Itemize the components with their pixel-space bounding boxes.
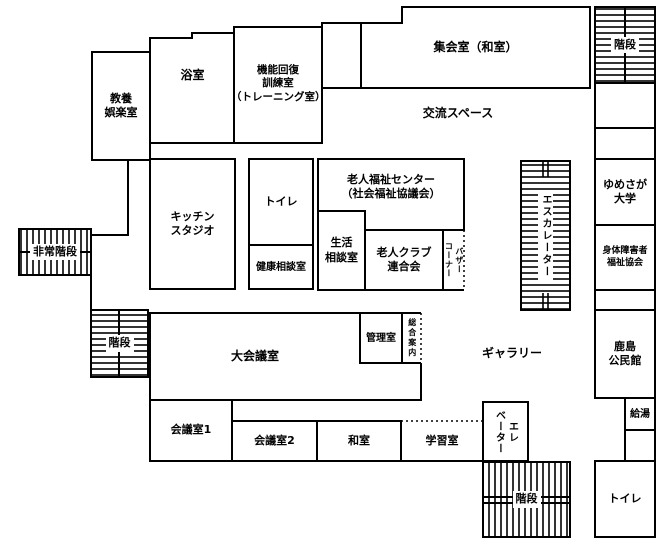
room-shintai-fukushi-outline — [595, 225, 655, 290]
room-yumesaga-univ-outline — [595, 159, 655, 225]
room-gakushuushitsu-outline — [401, 421, 483, 461]
floor-plan-walls — [0, 0, 667, 549]
escalator — [521, 161, 570, 310]
room-kanrishitsu-outline — [360, 313, 402, 363]
room-toilet-center-outline — [249, 159, 313, 245]
cell-blank-top-outline — [322, 23, 361, 88]
cell-blank-right1-outline — [595, 128, 655, 159]
room-shukaishitsu-outline — [361, 7, 590, 88]
room-kaigishitsu1-outline — [150, 400, 232, 461]
room-yokushitsu-outline — [150, 33, 234, 143]
room-kaigishitsu2-outline — [232, 421, 317, 461]
room-kyoyo-goraku-outline — [92, 52, 150, 160]
room-washitsu-outline — [317, 421, 401, 461]
room-kyutou-outline — [625, 398, 655, 430]
room-kinou-kaifuku-outline — [234, 27, 322, 143]
elevator-outline — [483, 402, 528, 461]
floor-plan: 教養 娯楽室 浴室 機能回復 訓練室 （トレーニング室） 集会室（和室） 交流ス… — [0, 0, 667, 549]
room-kitchen-studio-outline — [150, 159, 235, 289]
cell-blank-right3-outline — [625, 430, 655, 461]
wall-left-corridor — [91, 160, 128, 235]
room-bazaar-corner-outline — [443, 230, 464, 290]
room-roujin-club-outline — [365, 230, 443, 290]
room-kashima-kouminkan-outline — [595, 310, 655, 398]
room-kenkou-soudan-outline — [249, 245, 313, 289]
room-toilet-right-outline — [595, 461, 655, 537]
stairs-bottom — [483, 462, 570, 537]
room-seikatsu-soudan-outline — [318, 211, 365, 290]
cell-blank-right2-outline — [595, 290, 655, 310]
